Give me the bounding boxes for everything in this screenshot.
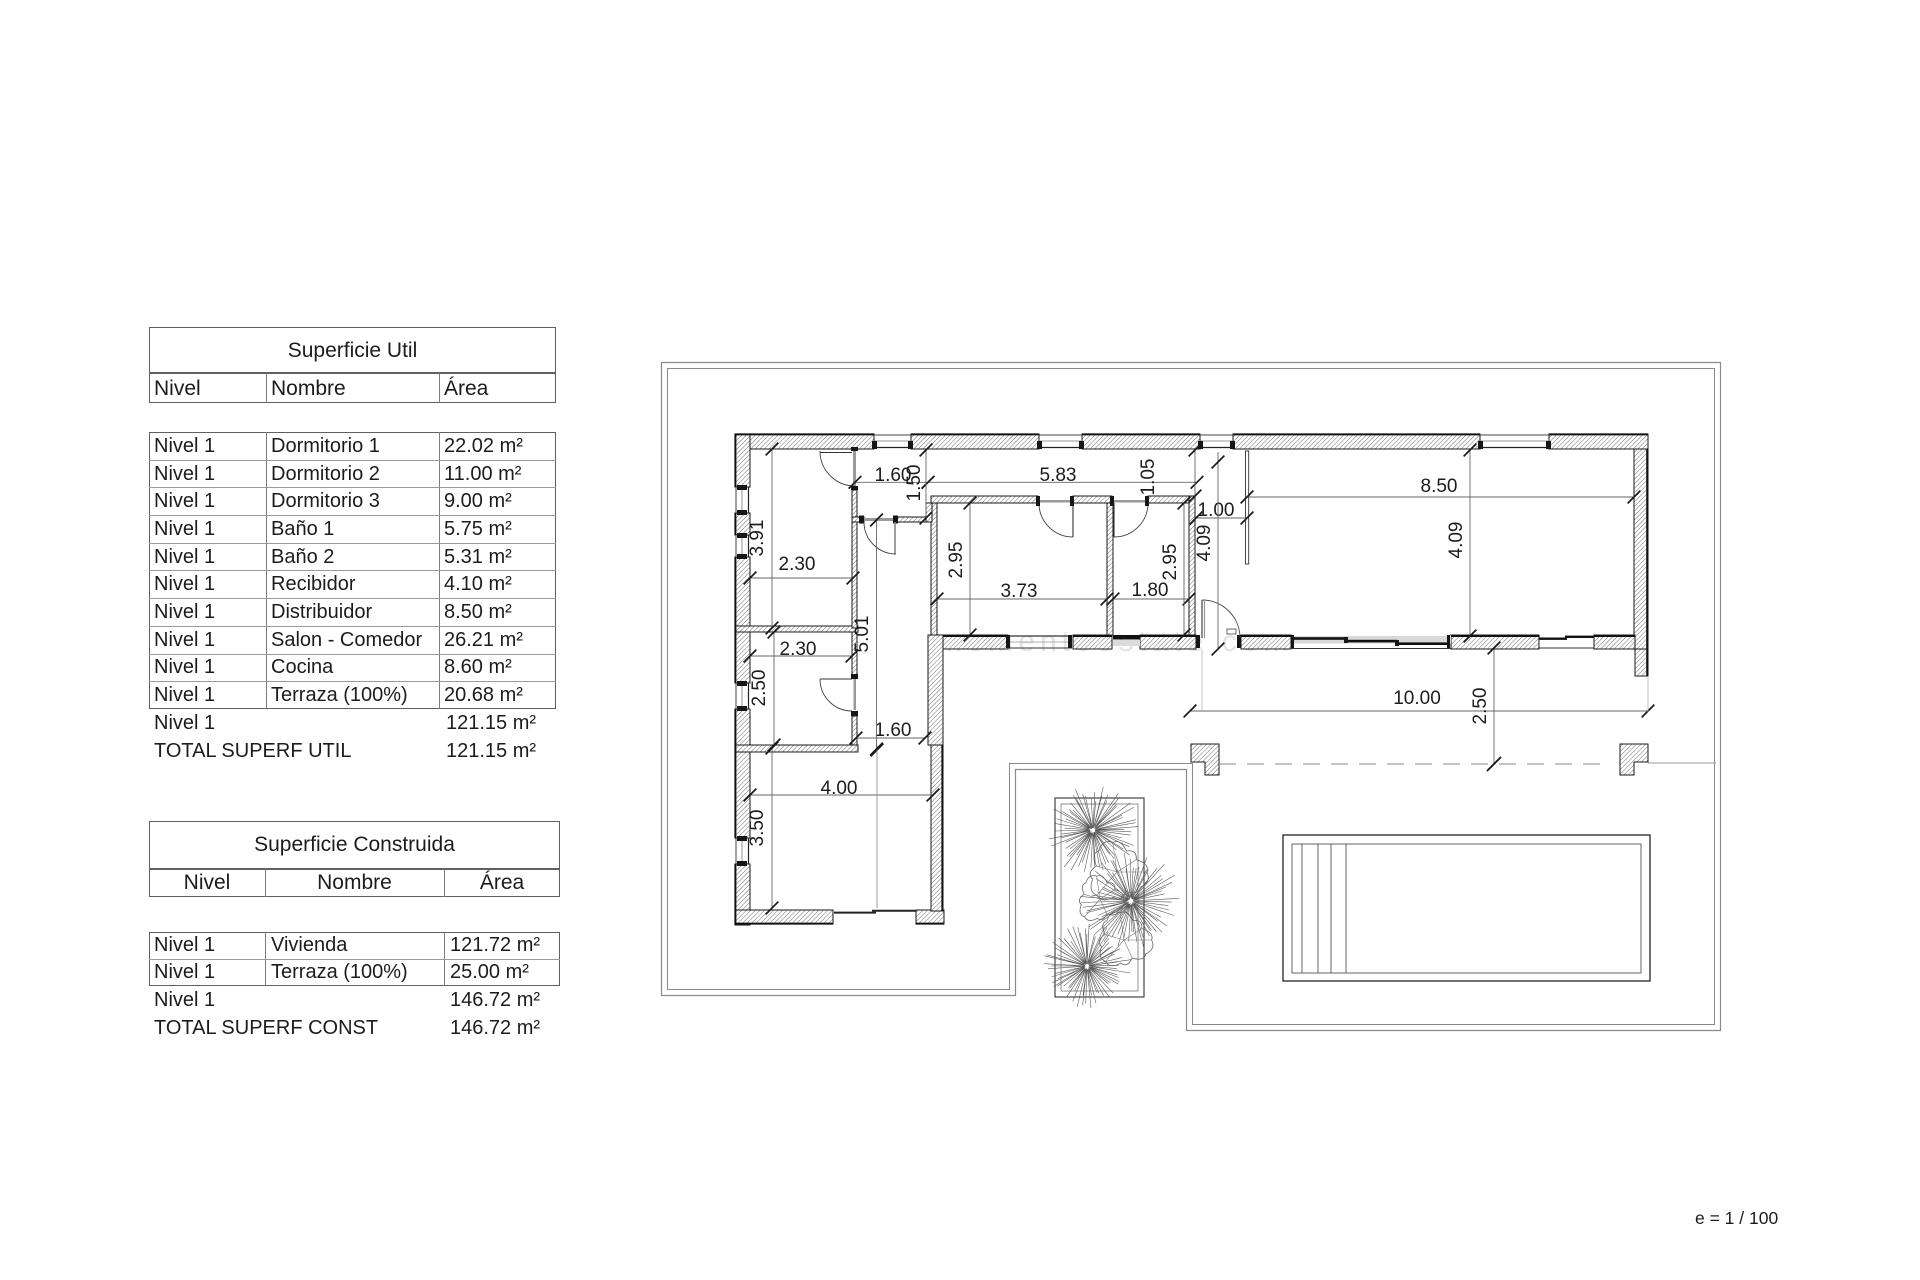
svg-text:10.00: 10.00 (1393, 688, 1441, 709)
svg-text:3.73: 3.73 (1001, 581, 1038, 602)
svg-text:2.50: 2.50 (1470, 688, 1491, 725)
svg-text:1.00: 1.00 (1198, 500, 1235, 521)
svg-text:2.50: 2.50 (749, 670, 770, 707)
svg-text:2.95: 2.95 (1160, 544, 1181, 581)
svg-text:2.30: 2.30 (780, 639, 817, 660)
svg-text:2.95: 2.95 (946, 542, 967, 579)
svg-text:4.09: 4.09 (1446, 522, 1467, 559)
svg-text:1.50: 1.50 (904, 465, 925, 502)
svg-text:4.09: 4.09 (1194, 525, 1215, 562)
svg-text:3.91: 3.91 (747, 520, 768, 557)
svg-text:3.50: 3.50 (747, 810, 768, 847)
svg-text:4.00: 4.00 (821, 778, 858, 799)
svg-text:8.50: 8.50 (1421, 476, 1458, 497)
svg-text:1.05: 1.05 (1138, 459, 1159, 496)
svg-text:5.01: 5.01 (852, 616, 873, 653)
svg-text:1.80: 1.80 (1132, 580, 1169, 601)
svg-text:5.83: 5.83 (1040, 465, 1077, 486)
svg-text:1.60: 1.60 (875, 720, 912, 741)
svg-text:2.30: 2.30 (779, 554, 816, 575)
